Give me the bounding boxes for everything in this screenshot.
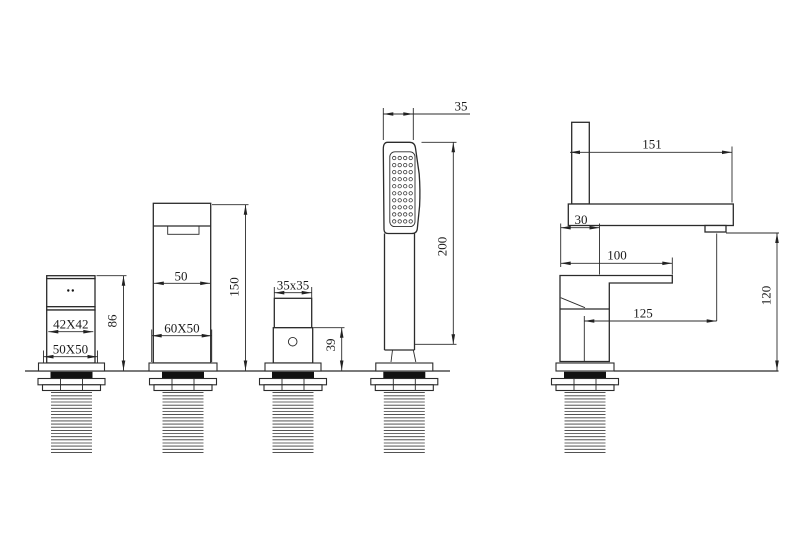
nozzle-dot-icon (398, 199, 401, 202)
nozzle-dot-icon (398, 163, 401, 166)
mounting-base (149, 363, 217, 452)
nozzle-dot-icon (409, 156, 412, 159)
nozzle-dot-icon (409, 170, 412, 173)
nozzle-dot-icon (404, 206, 407, 209)
nozzle-dot-icon (393, 199, 396, 202)
dim-side-handle-label: 100 (607, 248, 627, 263)
nozzle-dot-icon (398, 170, 401, 173)
dim-spout-base-label: 60X50 (164, 321, 199, 336)
nozzle-dot-icon (393, 163, 396, 166)
nozzle-dot-icon (398, 178, 401, 181)
nozzle-dot-icon (398, 220, 401, 223)
dimension-arrow-icon (722, 151, 732, 155)
nozzle-dot-icon (409, 213, 412, 216)
dim-handle-height-label: 39 (323, 339, 338, 352)
dimension-arrow-icon (122, 276, 126, 286)
nozzle-dot-icon (404, 185, 407, 188)
nozzle-dot-icon (393, 206, 396, 209)
dim-valve-base-label: 50X50 (53, 342, 88, 357)
gasket (272, 372, 314, 379)
nozzle-dot-icon (393, 192, 396, 195)
nozzle-dot-icon (404, 192, 407, 195)
hand-shower-front-view (383, 142, 420, 362)
nozzle-dot-icon (409, 206, 412, 209)
dim-valve-inner-label: 42X42 (53, 317, 88, 332)
nozzle-dot-icon (404, 156, 407, 159)
faucet-body-profile (560, 276, 672, 362)
dimension-arrow-icon (244, 205, 248, 215)
threaded-shank (163, 393, 204, 453)
dim-side-spout-label: 125 (633, 306, 653, 321)
dimension-arrow-icon (590, 226, 600, 230)
nozzle-dot-icon (409, 163, 412, 166)
gasket (162, 372, 204, 379)
dimension-arrow-icon (561, 226, 571, 230)
nozzle-dot-icon (409, 192, 412, 195)
nozzle-dot-icon (398, 213, 401, 216)
dimension-arrow-icon (775, 361, 779, 371)
nozzle-dot-icon (393, 156, 396, 159)
nozzle-dot-icon (398, 206, 401, 209)
dimension-arrow-icon (340, 328, 344, 338)
nozzle-dot-icon (409, 178, 412, 181)
gasket (564, 372, 606, 379)
threaded-shank (51, 393, 92, 453)
nozzle-dot-icon (404, 170, 407, 173)
nozzle-dot-icon (393, 220, 396, 223)
dimension-arrow-icon (707, 319, 717, 323)
mounting-base (260, 363, 327, 452)
shower-holder-profile (572, 122, 590, 204)
handle-front-view (273, 298, 312, 363)
nozzle-dot-icon (409, 199, 412, 202)
nozzle-dot-icon (404, 213, 407, 216)
dim-side-offset-label: 30 (575, 212, 588, 227)
mounting-base (552, 363, 619, 452)
nozzle-dot-icon (409, 185, 412, 188)
threaded-shank (273, 393, 314, 453)
dim-valve-height-label: 86 (105, 314, 120, 328)
shower-head-outline (383, 142, 420, 233)
mounting-base (38, 363, 105, 452)
threaded-shank (384, 393, 425, 453)
dim-spout-height-label: 150 (227, 277, 242, 297)
dim-shower-height-label: 200 (435, 237, 450, 257)
nozzle-dot-icon (404, 220, 407, 223)
dimension-arrow-icon (775, 233, 779, 243)
nozzle-dot-icon (404, 178, 407, 181)
nozzle-dot-icon (409, 220, 412, 223)
dimension-arrow-icon (244, 361, 248, 371)
dimension-arrow-icon (403, 112, 413, 116)
threaded-shank (565, 393, 606, 453)
gasket (51, 372, 93, 379)
drawing-sheet: 42X42 50X50 86 50 60X50 150 35x35 39 35 … (0, 0, 800, 551)
mixer-side-view (560, 122, 733, 361)
dimension-arrow-icon (452, 142, 456, 152)
spout-arm-profile (568, 204, 733, 226)
dimension-arrow-icon (662, 262, 672, 266)
nozzle-dot-icon (393, 213, 396, 216)
mounting-base (371, 363, 438, 452)
mounting-bases (38, 363, 619, 452)
dimension-arrow-icon (452, 334, 456, 344)
nozzle-dot-icon (404, 163, 407, 166)
dimension-arrow-icon (340, 361, 344, 371)
nozzle-dot-icon (393, 185, 396, 188)
gasket (383, 372, 425, 379)
dim-spout-width-label: 50 (175, 268, 188, 283)
dimension-arrow-icon (561, 262, 571, 266)
nozzle-dot-icon (398, 156, 401, 159)
dim-side-height-label: 120 (759, 286, 774, 306)
dim-side-reach-label: 151 (642, 137, 662, 152)
dim-handle-size-label: 35x35 (277, 278, 310, 293)
spout-outlet-profile (705, 226, 726, 233)
nozzle-dot-icon (398, 185, 401, 188)
nozzle-dot-icon (393, 170, 396, 173)
dimension-arrow-icon (122, 361, 126, 371)
nozzle-dot-icon (398, 192, 401, 195)
nozzle-dot-icon (404, 199, 407, 202)
dim-shower-width-label: 35 (455, 99, 468, 114)
technical-drawing-canvas: 42X42 50X50 86 50 60X50 150 35x35 39 35 … (0, 0, 800, 551)
nozzle-dot-icon (393, 178, 396, 181)
dimension-arrow-icon (383, 112, 393, 116)
